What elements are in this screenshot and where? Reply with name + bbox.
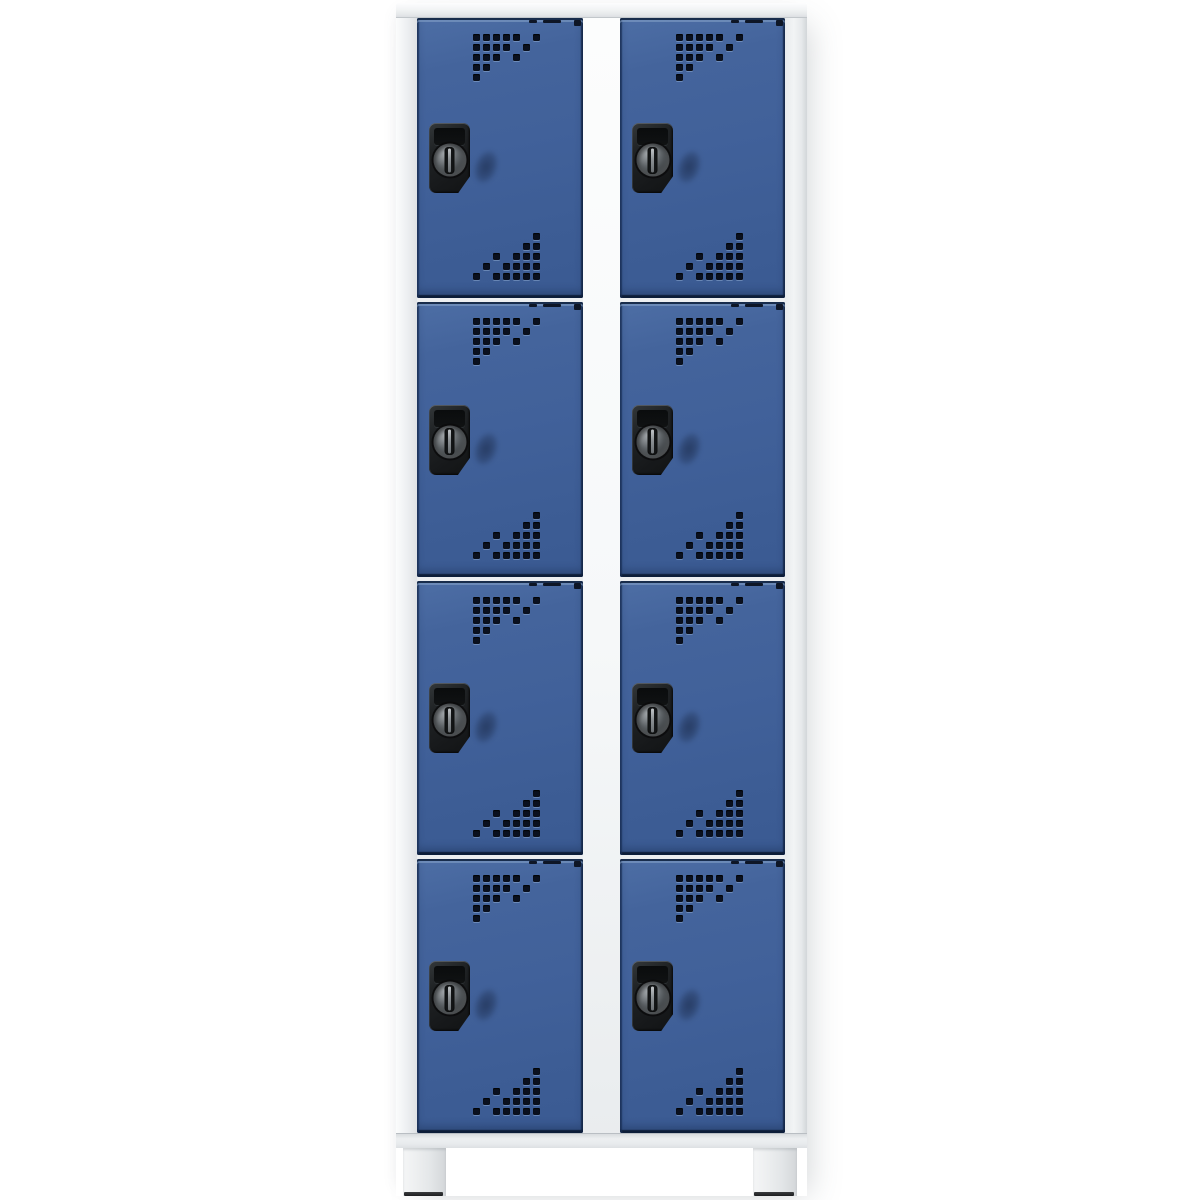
vent-hole [696,885,703,892]
vent-hole [503,597,510,604]
door-corner-notch [776,583,783,589]
vent-hole [686,1098,693,1105]
vent-hole [473,915,480,922]
vent-hole [706,607,713,614]
vent-hole [533,532,540,539]
vent-hole [736,1078,743,1085]
vent-hole [503,552,510,559]
vent-hole [523,44,530,51]
vent-hole [676,637,683,644]
vent-hole [696,54,703,61]
vent-hole [736,243,743,250]
locker-door-c1r2 [417,302,583,577]
vent-hole [726,820,733,827]
door-top-slot [529,583,537,586]
vent-pattern-bottom [473,1068,540,1115]
vent-hole [716,253,723,260]
vent-hole [483,820,490,827]
vent-hole [473,597,480,604]
vent-hole [473,617,480,624]
vent-hole [726,800,733,807]
vent-hole [716,830,723,837]
vent-hole [726,810,733,817]
vent-hole [676,905,683,912]
vent-hole [483,875,490,882]
vent-hole [473,607,480,614]
vent-hole [493,54,500,61]
vent-hole [736,263,743,270]
vent-hole [736,512,743,519]
vent-hole [676,552,683,559]
vent-hole [706,34,713,41]
vent-hole [523,522,530,529]
vent-hole [533,1108,540,1115]
vent-hole [736,820,743,827]
vent-hole [533,243,540,250]
vent-hole [503,318,510,325]
lock-knob [433,425,466,458]
vent-hole [493,328,500,335]
door-handle [632,405,673,475]
vent-hole [736,552,743,559]
vent-hole [726,243,733,250]
vent-hole [523,1078,530,1085]
vent-hole [716,1098,723,1105]
vent-hole [686,820,693,827]
vent-hole [736,522,743,529]
handle-recess [434,688,465,705]
vent-hole [523,243,530,250]
vent-hole [686,34,693,41]
cabinet-leg-right [753,1148,797,1196]
cabinet-plinth [396,1133,807,1148]
vent-hole [483,54,490,61]
handle-shadow [464,978,508,1031]
vent-hole [513,273,520,280]
vent-hole [696,253,703,260]
vent-hole [503,1098,510,1105]
vent-hole [473,885,480,892]
vent-hole [716,273,723,280]
vent-hole [686,542,693,549]
vent-hole [726,1098,733,1105]
door-handle [632,123,673,193]
vent-hole [503,328,510,335]
door-handle [429,405,470,475]
vent-hole [493,532,500,539]
vent-hole [493,607,500,614]
vent-hole [706,597,713,604]
door-top-slot [543,861,561,864]
handle-shadow [464,700,508,753]
vent-hole [533,552,540,559]
vent-hole [513,338,520,345]
vent-hole [716,532,723,539]
vent-hole [736,532,743,539]
door-top-slot [745,304,763,307]
leg-foot [754,1192,794,1196]
vent-hole [736,542,743,549]
vent-hole [676,830,683,837]
vent-hole [676,74,683,81]
door-top-slot [529,304,537,307]
vent-pattern-top [473,318,540,365]
vent-pattern-top [676,875,743,922]
knob-grip-bar [448,708,451,732]
handle-recess [434,966,465,983]
vent-hole [686,318,693,325]
vent-hole [503,607,510,614]
vent-hole [513,54,520,61]
vent-hole [503,263,510,270]
vent-hole [513,253,520,260]
vent-hole [533,263,540,270]
door-top-slot [529,861,537,864]
vent-hole [473,552,480,559]
vent-hole [523,542,530,549]
vent-hole [716,34,723,41]
vent-hole [716,1088,723,1095]
handle-recess [434,128,465,145]
handle-shadow [464,140,508,193]
vent-hole [533,253,540,260]
vent-hole [726,532,733,539]
knob-grip-bar [651,430,654,454]
vent-hole [716,263,723,270]
product-photo [0,0,1200,1200]
knob-grip-bar [651,148,654,172]
vent-hole [513,810,520,817]
vent-hole [483,338,490,345]
vent-hole [513,617,520,624]
vent-hole [483,895,490,902]
vent-hole [473,905,480,912]
handle-recess [637,410,668,427]
vent-hole [483,905,490,912]
vent-hole [706,328,713,335]
door-corner-notch [574,304,581,310]
vent-hole [513,830,520,837]
vent-hole [706,1098,713,1105]
vent-hole [726,830,733,837]
handle-shadow [667,700,711,753]
vent-hole [676,34,683,41]
vent-hole [523,607,530,614]
vent-hole [493,273,500,280]
vent-hole [706,318,713,325]
vent-hole [706,273,713,280]
vent-hole [493,597,500,604]
vent-hole [523,1108,530,1115]
vent-hole [696,44,703,51]
handle-recess [434,410,465,427]
vent-hole [483,34,490,41]
vent-hole [676,328,683,335]
vent-hole [696,617,703,624]
vent-hole [473,348,480,355]
vent-hole [513,542,520,549]
vent-hole [523,552,530,559]
vent-hole [676,1108,683,1115]
vent-hole [493,1108,500,1115]
vent-hole [503,542,510,549]
vent-hole [696,318,703,325]
vent-hole [523,1098,530,1105]
vent-hole [493,830,500,837]
vent-pattern-top [473,597,540,644]
vent-hole [483,597,490,604]
vent-pattern-bottom [676,512,743,559]
vent-hole [726,607,733,614]
vent-hole [513,1098,520,1105]
vent-hole [533,522,540,529]
vent-hole [513,820,520,827]
cabinet-left-rail [396,18,417,1148]
door-handle [632,961,673,1031]
knob-grip-bar [651,986,654,1010]
vent-hole [523,532,530,539]
vent-hole [533,830,540,837]
vent-hole [473,34,480,41]
vent-hole [676,597,683,604]
vent-pattern-bottom [676,790,743,837]
vent-hole [523,273,530,280]
vent-hole [473,64,480,71]
vent-hole [736,597,743,604]
cabinet-top-frame [396,3,807,18]
vent-hole [726,44,733,51]
vent-hole [706,552,713,559]
vent-hole [493,338,500,345]
door-top-slot [731,583,739,586]
vent-hole [716,875,723,882]
vent-hole [513,1088,520,1095]
knob-grip-bar [448,148,451,172]
door-top-slot [731,20,739,23]
locker-door-c2r1 [620,18,785,298]
vent-hole [676,607,683,614]
vent-pattern-top [676,34,743,81]
locker-cabinet [396,3,807,1196]
vent-hole [676,875,683,882]
door-top-slot [745,861,763,864]
vent-hole [686,885,693,892]
vent-hole [533,34,540,41]
vent-hole [676,338,683,345]
vent-hole [523,885,530,892]
door-handle [429,961,470,1031]
vent-hole [716,1108,723,1115]
vent-hole [503,1108,510,1115]
lock-knob [433,982,466,1015]
vent-hole [493,44,500,51]
locker-door-c1r3 [417,581,583,855]
vent-hole [473,830,480,837]
vent-hole [483,348,490,355]
vent-hole [523,1088,530,1095]
vent-hole [686,597,693,604]
vent-hole [696,552,703,559]
vent-hole [726,1078,733,1085]
vent-hole [696,532,703,539]
vent-hole [736,790,743,797]
vent-hole [726,328,733,335]
door-top-slot [745,583,763,586]
cabinet-center-divider [583,18,620,1148]
vent-hole [716,338,723,345]
vent-hole [686,905,693,912]
vent-hole [473,637,480,644]
vent-hole [726,253,733,260]
locker-door-c1r4 [417,859,583,1133]
lock-knob [636,425,669,458]
door-handle [429,123,470,193]
vent-hole [533,1088,540,1095]
vent-hole [696,328,703,335]
vent-hole [533,875,540,882]
vent-hole [533,273,540,280]
vent-hole [696,1088,703,1095]
vent-hole [726,552,733,559]
knob-grip-bar [651,708,654,732]
lock-knob [433,144,466,177]
vent-hole [706,542,713,549]
vent-hole [726,522,733,529]
vent-hole [513,875,520,882]
vent-hole [493,617,500,624]
vent-hole [503,885,510,892]
vent-hole [513,318,520,325]
vent-hole [473,54,480,61]
vent-hole [686,64,693,71]
door-handle [429,683,470,753]
vent-hole [503,830,510,837]
cabinet-right-rail [785,18,807,1148]
vent-hole [523,263,530,270]
door-top-slot [745,20,763,23]
knob-grip-bar [448,430,451,454]
vent-hole [523,328,530,335]
vent-hole [706,875,713,882]
door-top-slot [543,20,561,23]
vent-hole [493,895,500,902]
vent-hole [533,1068,540,1075]
vent-hole [473,74,480,81]
vent-hole [473,328,480,335]
vent-hole [483,617,490,624]
door-top-slot [543,583,561,586]
vent-hole [736,1098,743,1105]
vent-hole [483,328,490,335]
vent-hole [493,875,500,882]
vent-hole [726,542,733,549]
vent-hole [533,790,540,797]
vent-hole [726,273,733,280]
vent-pattern-top [473,34,540,81]
vent-hole [473,44,480,51]
vent-hole [726,1088,733,1095]
lock-knob [636,144,669,177]
vent-hole [686,895,693,902]
vent-hole [493,34,500,41]
vent-hole [716,810,723,817]
locker-door-c2r2 [620,302,785,577]
vent-hole [676,64,683,71]
vent-hole [706,820,713,827]
door-corner-notch [574,583,581,589]
vent-hole [533,597,540,604]
vent-hole [736,875,743,882]
door-top-slot [731,861,739,864]
vent-hole [726,263,733,270]
locker-door-c2r4 [620,859,785,1133]
vent-hole [533,800,540,807]
vent-hole [686,328,693,335]
vent-hole [686,607,693,614]
knob-grip-bar [448,986,451,1010]
vent-hole [493,318,500,325]
vent-hole [696,338,703,345]
vent-hole [726,1108,733,1115]
vent-hole [513,552,520,559]
vent-hole [686,44,693,51]
vent-hole [493,253,500,260]
vent-hole [533,542,540,549]
vent-hole [503,875,510,882]
vent-hole [716,318,723,325]
vent-hole [686,338,693,345]
vent-pattern-bottom [473,512,540,559]
handle-shadow [464,422,508,475]
vent-hole [533,1078,540,1085]
door-corner-notch [776,304,783,310]
vent-hole [696,895,703,902]
vent-hole [706,830,713,837]
handle-recess [637,688,668,705]
vent-hole [696,875,703,882]
vent-hole [513,597,520,604]
door-corner-notch [574,20,581,26]
vent-hole [533,810,540,817]
vent-hole [483,1098,490,1105]
vent-hole [676,915,683,922]
vent-hole [696,597,703,604]
vent-hole [473,273,480,280]
door-corner-notch [776,861,783,867]
vent-hole [696,273,703,280]
door-handle [632,683,673,753]
vent-hole [736,253,743,260]
vent-hole [716,542,723,549]
vent-hole [696,810,703,817]
vent-hole [736,273,743,280]
vent-hole [473,875,480,882]
vent-hole [493,552,500,559]
vent-hole [736,318,743,325]
vent-hole [533,233,540,240]
vent-hole [706,1108,713,1115]
handle-recess [637,128,668,145]
vent-hole [706,885,713,892]
locker-door-c2r3 [620,581,785,855]
vent-hole [483,44,490,51]
vent-hole [716,54,723,61]
handle-shadow [667,422,711,475]
vent-hole [513,34,520,41]
locker-door-c1r1 [417,18,583,298]
vent-hole [716,597,723,604]
vent-hole [736,233,743,240]
